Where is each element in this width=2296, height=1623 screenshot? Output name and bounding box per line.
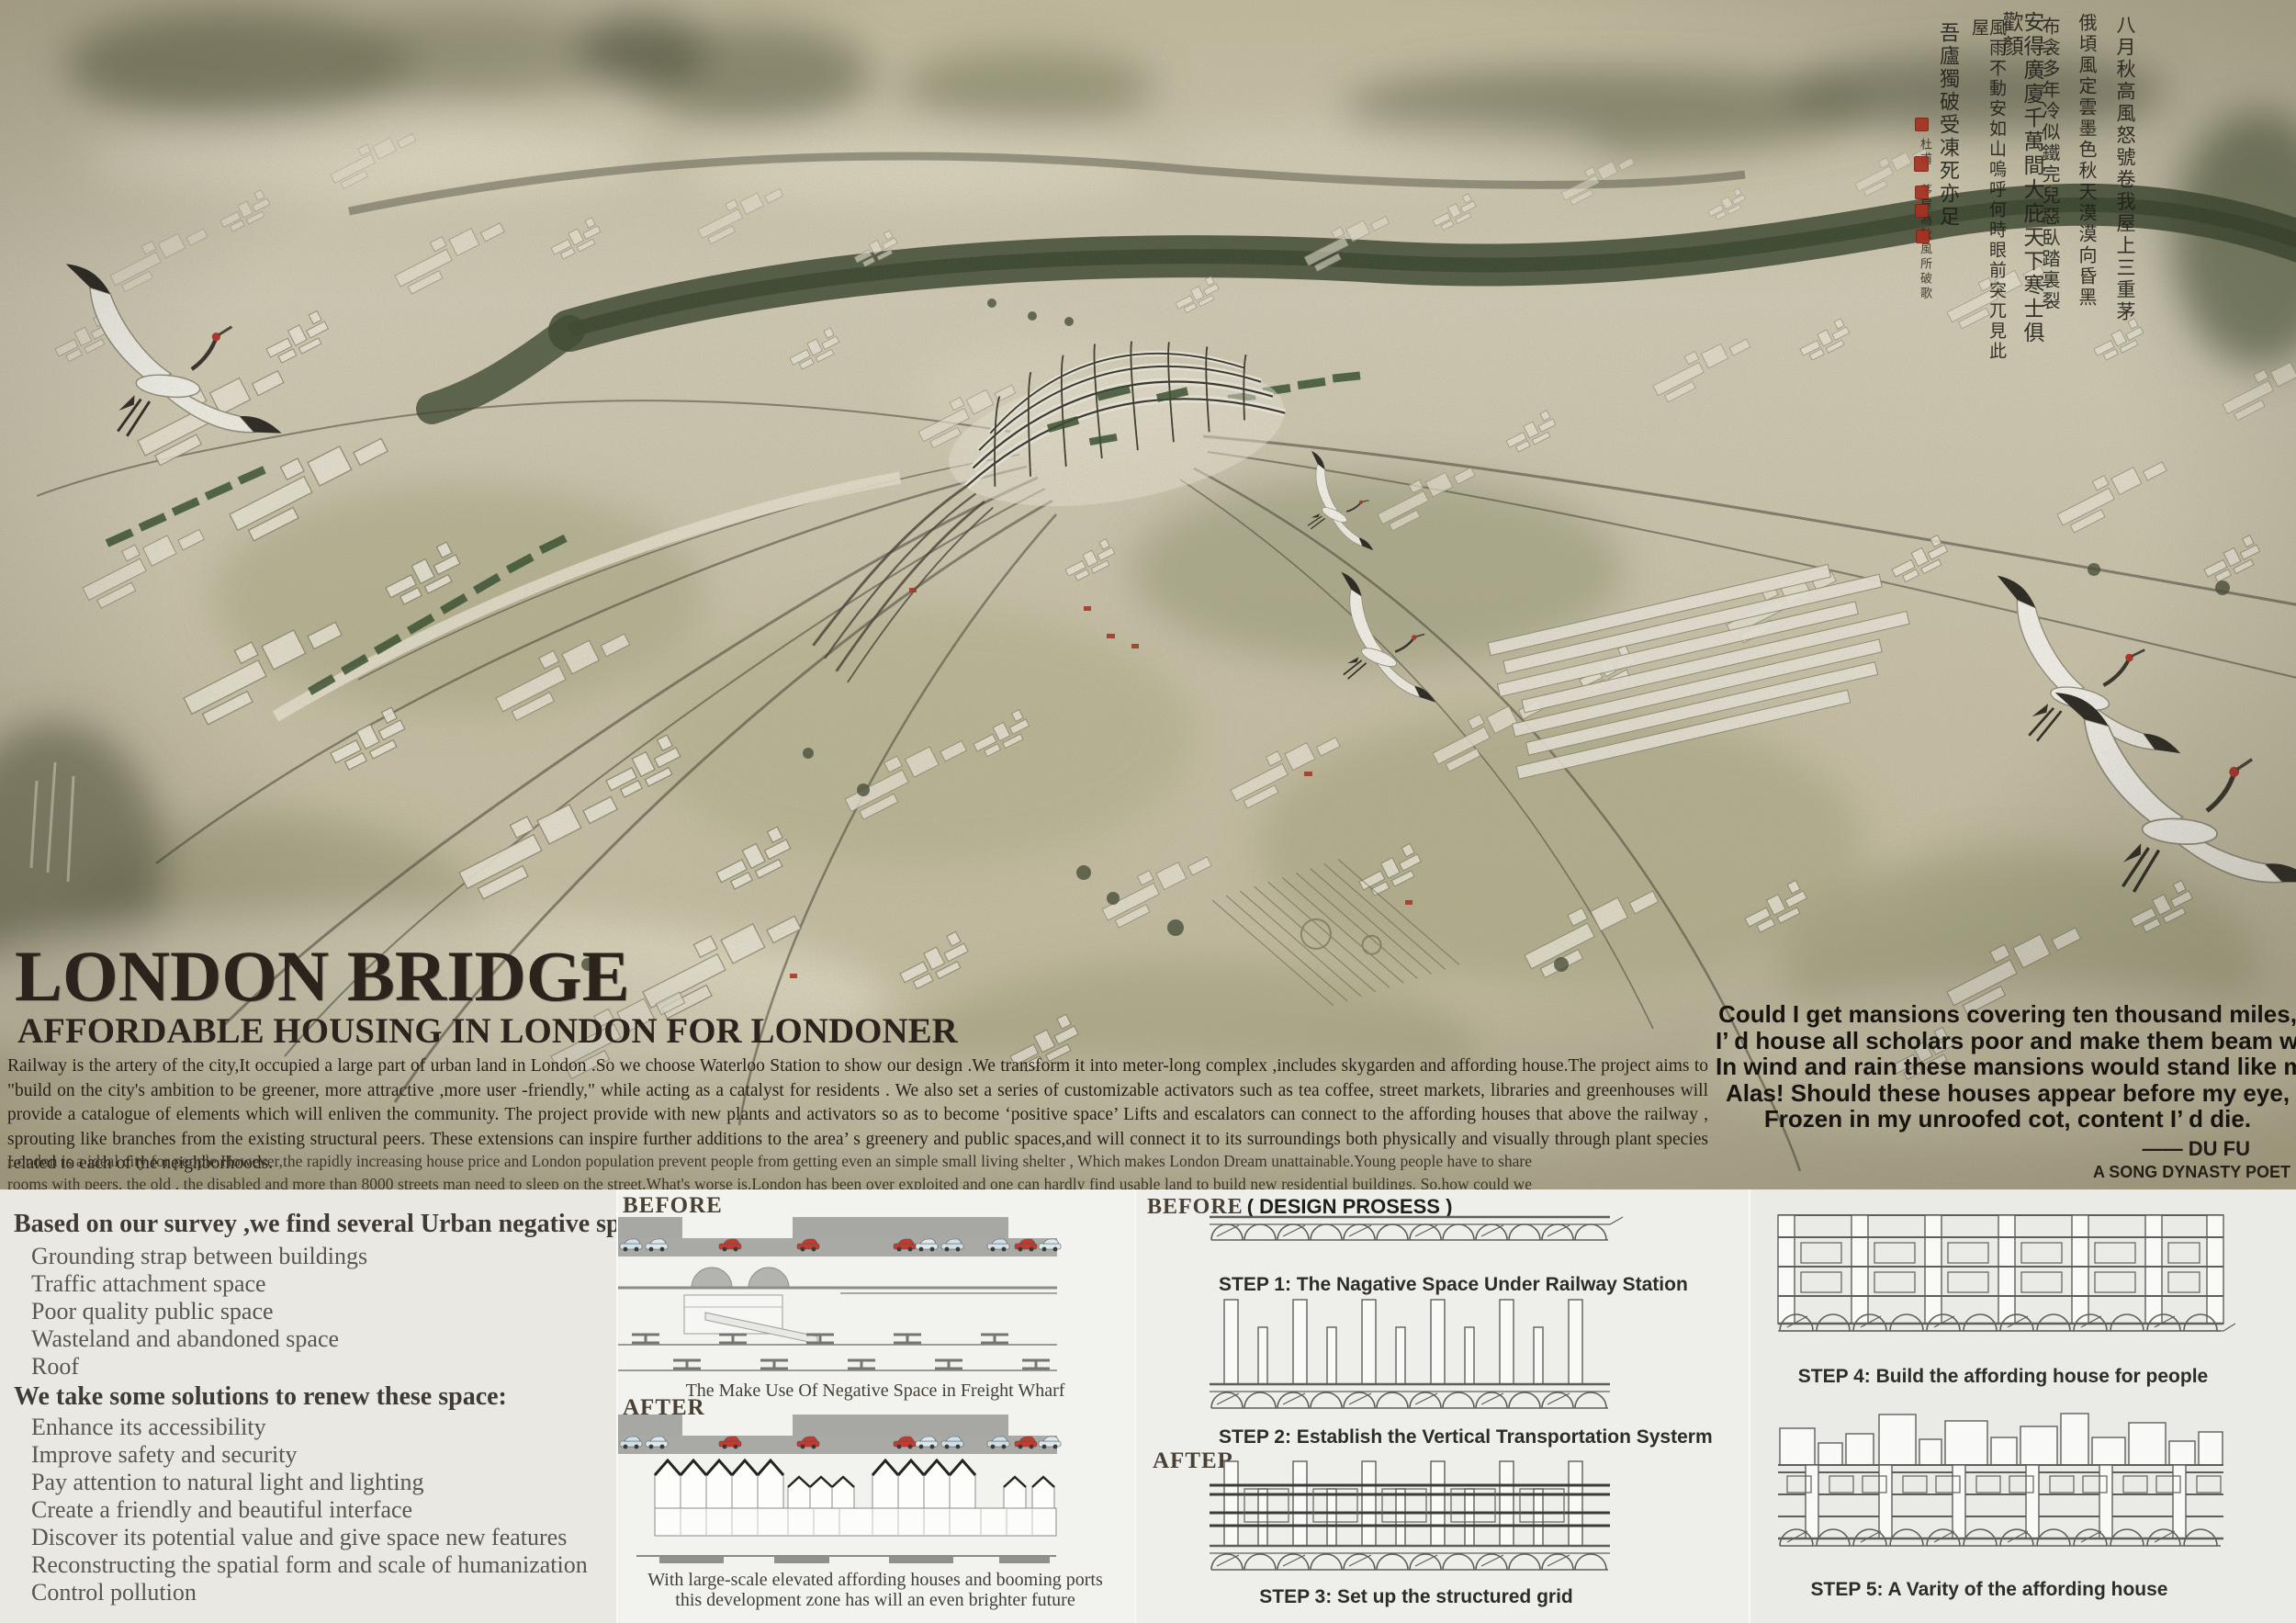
poster-title: LONDON BRIDGE	[15, 935, 841, 1018]
red-seal-stamp	[1915, 204, 1929, 218]
step1-caption: STEP 1: The Nagative Space Under Railway…	[1219, 1274, 1614, 1296]
poem-line: I’ d house all scholars poor and make th…	[1716, 1028, 2296, 1054]
wharf-before-caption: The Make Use Of Negative Space in Freigh…	[618, 1381, 1132, 1402]
solution-item: Reconstructing the spatial form and scal…	[0, 1551, 637, 1579]
calligraphy-column: 吾廬獨破受凍死亦足	[1938, 22, 1958, 334]
poem-line: In wind and rain these mansions would st…	[1716, 1054, 2296, 1080]
survey-item: Poor quality public space	[0, 1298, 637, 1325]
calligraphy-column: 八月秋高風怒號卷我屋上三重茅	[2115, 15, 2134, 345]
red-seal-stamp	[1914, 156, 1929, 172]
survey-item: Wasteland and abandoned space	[0, 1325, 637, 1353]
step4-caption: STEP 4: Build the affording house for pe…	[1792, 1366, 2214, 1388]
poster-board: 八月秋高風怒號卷我屋上三重茅 俄頃風定雲墨色秋天漠漠向昏黑 布衾多年冷似鐵完兒惡…	[0, 0, 2296, 1623]
poem-translation: Could I get mansions covering ten thousa…	[1716, 1001, 2296, 1133]
red-seal-stamp	[1915, 186, 1929, 199]
poem-line: Alas! Should these houses appear before …	[1716, 1080, 2296, 1107]
solution-item: Pay attention to natural light and light…	[0, 1469, 637, 1496]
panel-divider	[616, 1189, 618, 1623]
step2-caption: STEP 2: Establish the Vertical Transport…	[1219, 1426, 1614, 1448]
wharf-after-caption-1: With large-scale elevated affording hous…	[618, 1570, 1132, 1591]
survey-panel: Based on our survey ,we find several Urb…	[0, 1189, 616, 1623]
survey-item: Roof	[0, 1353, 637, 1381]
process-panel: BEFORE ( DESIGN PROSESS ) AFTER	[1136, 1189, 1749, 1623]
red-seal-stamp	[1916, 230, 1930, 243]
survey-item: Traffic attachment space	[0, 1270, 637, 1298]
solution-item: Control pollution	[0, 1579, 637, 1606]
solution-item: Discover its potential value and give sp…	[0, 1524, 637, 1551]
process-diagram	[1136, 1189, 1749, 1623]
poem-attribution: —— DU FU	[1975, 1137, 2250, 1161]
wharf-diagram	[618, 1189, 1134, 1623]
poster-subtitle: AFFORDABLE HOUSING IN LONDON FOR LONDONE…	[17, 1010, 1120, 1052]
panel-divider	[1749, 1189, 1750, 1623]
step3-caption: STEP 3: Set up the structured grid	[1219, 1586, 1614, 1608]
survey-item: Grounding strap between buildings	[0, 1243, 637, 1270]
calligraphy-column: 俄頃風定雲墨色秋天漠漠向昏黑	[2077, 13, 2095, 344]
housing-diagram	[1750, 1189, 2296, 1623]
poem-line: Frozen in my unroofed cot, content I’ d …	[1716, 1106, 2296, 1133]
bottom-panel-strip: Based on our survey ,we find several Urb…	[0, 1189, 2296, 1623]
housing-panel: STEP 4: Build the affording house for pe…	[1750, 1189, 2296, 1623]
solution-item: Enhance its accessibility	[0, 1414, 637, 1441]
solution-item: Improve safety and security	[0, 1441, 637, 1469]
wharf-panel: BEFORE AFTER	[618, 1189, 1134, 1623]
panel-divider	[1134, 1189, 1136, 1623]
wharf-after-caption-2: this development zone has will an even b…	[618, 1590, 1132, 1611]
red-seal-stamp	[1915, 118, 1929, 131]
calligraphy-column: 安得廣廈千萬間大庇天下寒士俱歡顏	[2000, 11, 2043, 360]
solution-item: Create a friendly and beautiful interfac…	[0, 1496, 637, 1524]
calligraphy-column: 風雨不動安如山嗚呼何時眼前突兀見此屋	[1970, 18, 2005, 367]
solutions-heading: We take some solutions to renew these sp…	[0, 1382, 620, 1412]
survey-heading: Based on our survey ,we find several Urb…	[0, 1210, 620, 1239]
poem-note: A SONG DYNASTY POET	[2048, 1163, 2290, 1182]
poem-line: Could I get mansions covering ten thousa…	[1716, 1001, 2296, 1028]
step5-caption: STEP 5: A Varity of the affording house	[1778, 1579, 2200, 1601]
